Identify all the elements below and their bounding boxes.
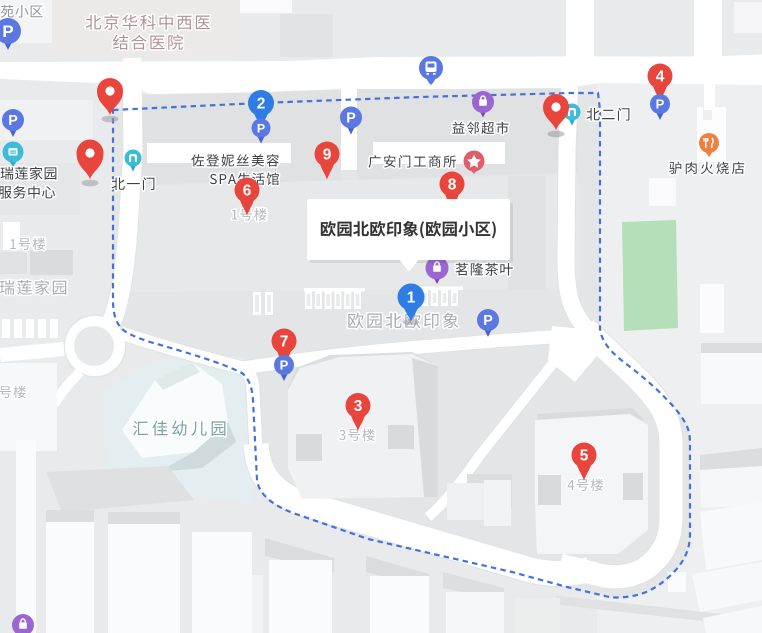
svg-text:P: P	[346, 110, 356, 126]
svg-text:6: 6	[243, 182, 252, 199]
svg-text:3: 3	[354, 398, 363, 415]
svg-text:5: 5	[580, 447, 589, 464]
svg-text:P: P	[483, 313, 493, 329]
svg-text:1: 1	[407, 289, 416, 306]
svg-text:2: 2	[257, 95, 266, 112]
svg-text:9: 9	[323, 146, 332, 163]
svg-text:4: 4	[656, 68, 665, 85]
svg-text:8: 8	[448, 176, 457, 193]
svg-text:P: P	[280, 358, 289, 373]
svg-text:P: P	[257, 121, 265, 135]
svg-text:P: P	[2, 22, 13, 41]
svg-text:P: P	[656, 97, 665, 112]
svg-text:P: P	[8, 113, 18, 129]
svg-text:7: 7	[280, 333, 289, 350]
